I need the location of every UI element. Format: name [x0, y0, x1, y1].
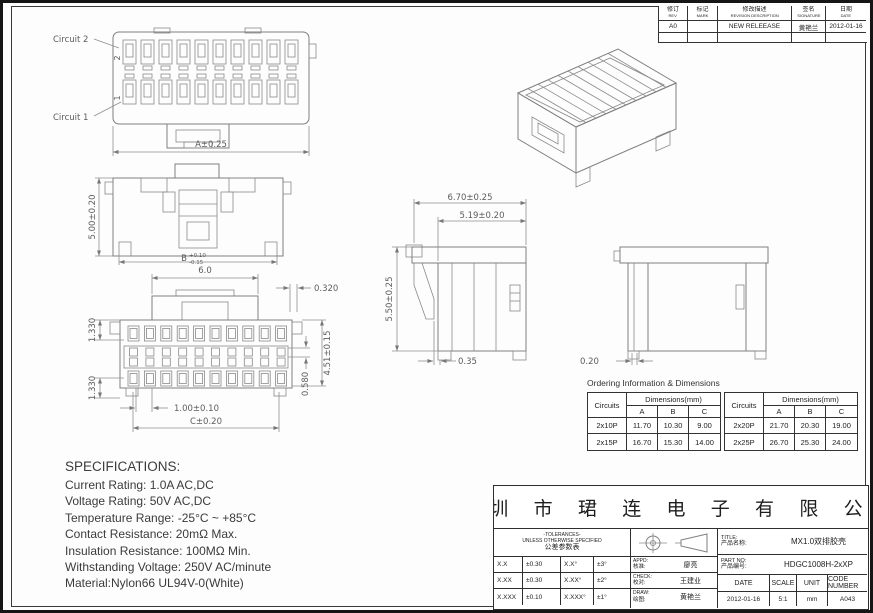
- rev-col-description-en: REVISION DESCRIPTION: [730, 14, 778, 18]
- spec-insulation-resistance: Insulation Resistance: 100MΩ Min.: [65, 543, 271, 559]
- projection-symbol: [631, 529, 717, 557]
- tol-xxdeg-val: ±3°: [594, 557, 630, 573]
- appd-row: APPD: 核准: 廖亮: [631, 557, 717, 573]
- dim-100-label: 1.00±0.10: [174, 404, 219, 414]
- rev-col-description: 修改描述 REVISION DESCRIPTION: [718, 6, 792, 21]
- partno-label-zh: 产品编号:: [721, 564, 770, 571]
- tol-xxxdeg-val: ±2°: [594, 573, 630, 589]
- circuit-2-label: Circuit 2: [53, 35, 88, 45]
- cell-a: 16.70: [627, 434, 658, 450]
- col-b: B: [795, 406, 826, 418]
- draw-name: 黄艳兰: [664, 589, 717, 605]
- side-views-drawing: 6.70±0.25 5.19±0.20 5.50±0.25 0.35 0.20: [384, 189, 788, 369]
- title-part-section: TITLE: 产品名称: MX1.0双排胶壳 PART NO: 产品编号: HD…: [718, 529, 867, 608]
- col-a: A: [627, 406, 658, 418]
- spec-material: Material:Nylon66 UL94V-0(White): [65, 575, 271, 591]
- rev-cell-rev: A0: [659, 21, 688, 33]
- face-view-drawing: 6.0 0.320 1.330 1.330 0.580 4.51±0.15 1.…: [56, 260, 358, 442]
- cell-a: 26.70: [764, 434, 795, 450]
- col-c: C: [689, 406, 720, 418]
- tol-xxxx: X.XXX: [494, 589, 523, 605]
- cell-c: 14.00: [689, 434, 720, 450]
- spec-contact-resistance: Contact Resistance: 20mΩ Max.: [65, 526, 271, 542]
- tol-xx-val: ±0.30: [523, 557, 561, 573]
- col-c: C: [826, 406, 857, 418]
- title-label-zh: 产品名称:: [721, 541, 770, 548]
- appd-name: 廖亮: [664, 557, 717, 572]
- dim-0320-label: 0.320: [314, 284, 338, 294]
- dim-670-label: 6.70±0.25: [448, 193, 493, 203]
- cell-circuits: 2x20P: [725, 418, 764, 434]
- cell-circuits: 2x10P: [588, 418, 627, 434]
- check-label-zh: 校对:: [633, 580, 664, 586]
- tolerances-section: -TOLERANCES- UNLESS OTHERWISE SPECIFIED …: [494, 529, 631, 608]
- ordering-table-left: Circuits Dimensions(mm) A B C 2x10P 11.7…: [587, 392, 721, 451]
- face-view-row-top: [128, 326, 287, 341]
- dim-0580-label: 0.580: [301, 372, 311, 396]
- check-row: CHECK: 校对: 王建业: [631, 573, 717, 589]
- approvals-section: APPD: 核准: 廖亮 CHECK: 校对: 王建业 DRAW: 绘图:: [631, 529, 718, 608]
- col-circuits: Circuits: [588, 393, 627, 418]
- dim-519-label: 5.19±0.20: [460, 211, 505, 221]
- code-number-value: A043: [828, 592, 867, 606]
- title-row: TITLE: 产品名称: MX1.0双排胶壳: [718, 529, 867, 555]
- scale-header: SCALE: [770, 575, 797, 592]
- cell-b: 15.30: [658, 434, 689, 450]
- circuit-1-label: Circuit 1: [53, 113, 88, 123]
- specifications-block: SPECIFICATIONS: Current Rating: 1.0A AC,…: [65, 459, 271, 592]
- unit-header: UNIT: [797, 575, 828, 592]
- date-value: 2012-01-16: [718, 592, 770, 606]
- ordering-title: Ordering Information & Dimensions: [587, 378, 858, 388]
- rev-cell-empty: [826, 33, 866, 42]
- cell-c: 19.00: [826, 418, 857, 434]
- appd-label-zh: 核准:: [633, 564, 664, 570]
- col-circuits: Circuits: [725, 393, 764, 418]
- rev-col-signature: 签名 SIGNATURE: [792, 6, 826, 21]
- rev-cell-signature: 黄艳兰: [792, 21, 826, 33]
- cell-circuits: 2x15P: [588, 434, 627, 450]
- isometric-view-drawing: [480, 31, 692, 191]
- top-view-contact-row-2: [123, 40, 298, 70]
- dim-1330-top-label: 1.330: [88, 318, 98, 342]
- spec-voltage-rating: Voltage Rating: 50V AC,DC: [65, 493, 271, 509]
- cell-a: 21.70: [764, 418, 795, 434]
- cell-b: 10.30: [658, 418, 689, 434]
- spec-current-rating: Current Rating: 1.0A AC,DC: [65, 477, 271, 493]
- dim-035-label: 0.35: [458, 357, 477, 367]
- rev-col-date: 日期 DATE: [826, 6, 866, 21]
- cell-a: 11.70: [627, 418, 658, 434]
- tol-xxxxdeg: X.XXX°: [561, 589, 594, 605]
- spec-withstanding-voltage: Withstanding Voltage: 250V AC/minute: [65, 559, 271, 575]
- rev-cell-empty: [792, 33, 826, 42]
- date-header: DATE: [718, 575, 770, 592]
- code-number-header: CODE NUMBER: [828, 575, 867, 592]
- scale-value: 5:1: [770, 592, 797, 606]
- cell-c: 9.00: [689, 418, 720, 434]
- rev-cell-empty: [688, 33, 718, 42]
- row-1-mark: 1: [113, 95, 122, 100]
- tol-xx: X.X: [494, 557, 523, 573]
- rev-col-date-en: DATE: [841, 14, 852, 18]
- col-dimensions: Dimensions(mm): [627, 393, 720, 406]
- top-view-contact-row-1: [123, 74, 298, 104]
- tol-xxxdeg: X.XX°: [561, 573, 594, 589]
- partno-row: PART NO: 产品编号: HDGC1008H-2xXP: [718, 555, 867, 575]
- draw-label-zh: 绘图:: [633, 597, 664, 603]
- draw-row: DRAW: 绘图: 黄艳兰: [631, 589, 717, 605]
- dim-550-label: 5.50±0.25: [385, 277, 395, 322]
- ordering-table-right: Circuits Dimensions(mm) A B C 2x20P 21.7…: [724, 392, 858, 451]
- product-title-value: MX1.0双排胶壳: [770, 529, 867, 554]
- dim-020-label: 0.20: [580, 357, 599, 367]
- specifications-title: SPECIFICATIONS:: [65, 459, 271, 474]
- tol-xxx-val: ±0.30: [523, 573, 561, 589]
- rev-cell-description: NEW RELEEASE: [718, 21, 792, 33]
- rev-col-rev: 修订 REV: [659, 6, 688, 21]
- face-view-row-bottom: [128, 371, 287, 386]
- unit-value: mm: [797, 592, 828, 606]
- cell-circuits: 2x25P: [725, 434, 764, 450]
- cell-b: 25.30: [795, 434, 826, 450]
- rev-col-mark: 标记 MARK: [688, 6, 718, 21]
- rev-cell-empty: [659, 33, 688, 42]
- rev-col-mark-en: MARK: [697, 14, 709, 18]
- front-view-drawing: 5.00±0.20 B +0.10 -0.15: [87, 152, 305, 268]
- tolerances-header: -TOLERANCES- UNLESS OTHERWISE SPECIFIED …: [494, 529, 630, 557]
- dim-6-0-label: 6.0: [198, 266, 212, 276]
- cell-c: 24.00: [826, 434, 857, 450]
- dim-1330-bottom-label: 1.330: [88, 376, 98, 400]
- tol-xxxxdeg-val: ±1°: [594, 589, 630, 605]
- rev-col-rev-en: REV: [669, 14, 677, 18]
- rev-cell-empty: [718, 33, 792, 42]
- tol-xxxx-val: ±0.10: [523, 589, 561, 605]
- iso-latch: [532, 117, 564, 153]
- tol-xxdeg: X.X°: [561, 557, 594, 573]
- spec-temperature-range: Temperature Range: -25°C ~ +85°C: [65, 510, 271, 526]
- dim-a-label: A±0.25: [195, 140, 227, 150]
- col-a: A: [764, 406, 795, 418]
- part-number-value: HDGC1008H-2xXP: [770, 555, 867, 574]
- drawing-sheet: 2 1 Circuit 2 Circuit 1 A±0.25: [0, 0, 873, 613]
- dim-height-label: 5.00±0.20: [88, 195, 98, 240]
- col-dimensions: Dimensions(mm): [764, 393, 857, 406]
- tol-xxx: X.XX: [494, 573, 523, 589]
- rev-cell-date: 2012-01-16: [826, 21, 866, 33]
- dim-451-label: 4.51±0.15: [323, 331, 333, 376]
- revision-table: 修订 REV 标记 MARK 修改描述 REVISION DESCRIPTION…: [658, 6, 867, 43]
- tolerances-line3: 公差参数表: [545, 544, 580, 552]
- face-view-mid-band: [130, 348, 286, 366]
- title-block: 深 圳 市 珺 连 电 子 有 限 公 司 -TOLERANCES- UNLES…: [493, 485, 869, 610]
- cell-b: 20.30: [795, 418, 826, 434]
- rev-col-signature-en: SIGNATURE: [797, 14, 820, 18]
- check-name: 王建业: [664, 573, 717, 588]
- col-b: B: [658, 406, 689, 418]
- dim-c-label: C±0.20: [190, 417, 222, 427]
- ordering-section: Ordering Information & Dimensions Circui…: [587, 378, 858, 451]
- company-name: 深 圳 市 珺 连 电 子 有 限 公 司: [494, 486, 868, 529]
- top-view-drawing: 2 1 Circuit 2 Circuit 1 A±0.25: [49, 16, 341, 162]
- third-angle-projection-icon: [635, 531, 713, 555]
- dim-b-plus: +0.10: [189, 253, 206, 259]
- row-2-mark: 2: [113, 55, 122, 60]
- rev-cell-mark: [688, 21, 718, 33]
